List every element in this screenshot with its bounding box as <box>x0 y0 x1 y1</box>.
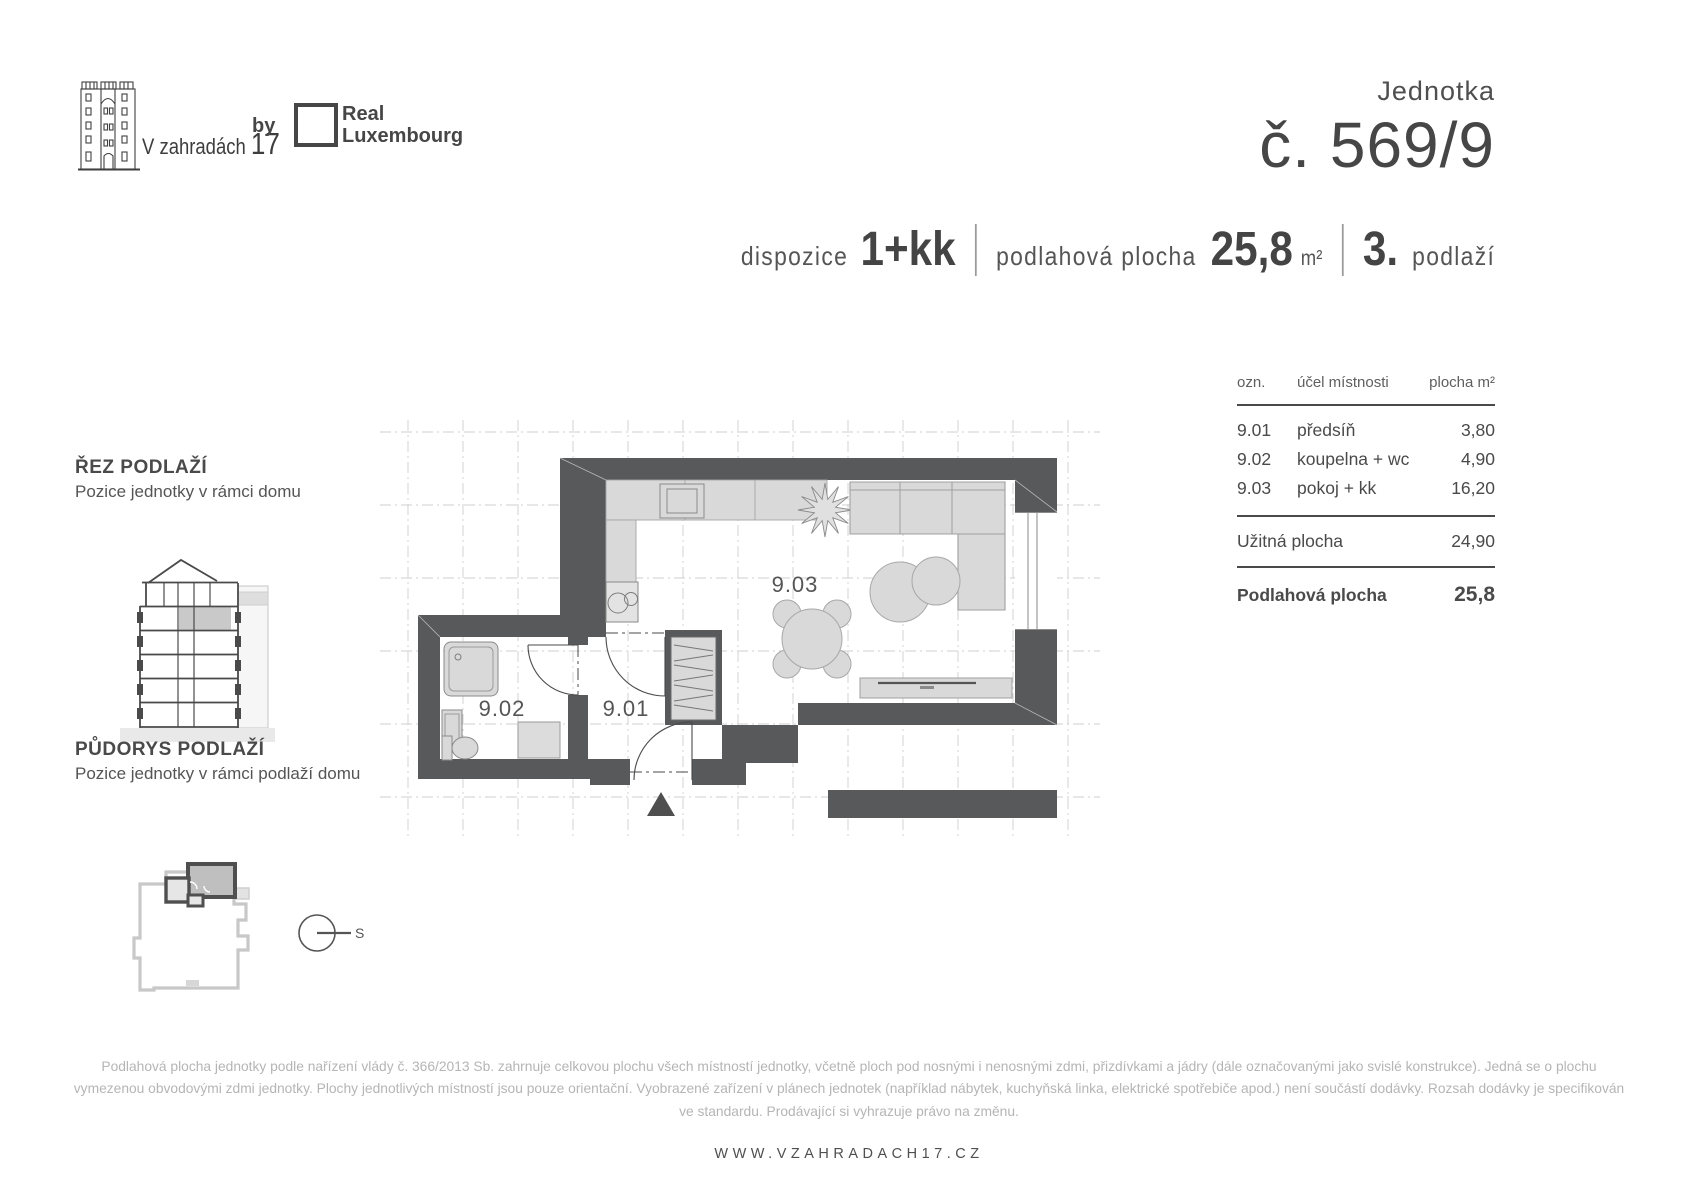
kitchen-sink <box>660 484 704 518</box>
area-label: podlahová plocha <box>996 241 1197 272</box>
floor-label: podlaží <box>1412 241 1495 272</box>
floor-position-title: PŮDORYS PODLAŽÍ <box>75 739 264 761</box>
floor-value: 3. <box>1363 222 1398 277</box>
dispozice-label: dispozice <box>741 241 848 272</box>
total-area-row: Podlahová plocha 25,8 <box>1237 568 1495 607</box>
floor-position-subtitle: Pozice jednotky v rámci podlaží domu <box>75 764 360 784</box>
col-plocha: plocha m² <box>1425 374 1495 391</box>
room-label-903: 9.03 <box>772 572 819 597</box>
col-ucel: účel místnosti <box>1297 374 1425 391</box>
spec-row: dispozice 1+kk podlahová plocha 25,8 m² … <box>741 222 1495 277</box>
floor-position-diagram <box>124 838 269 998</box>
real-luxembourg-wordmark: Real Luxembourg <box>342 103 463 147</box>
brochure-page: V zahradách 17 by Real Luxembourg Jednot… <box>0 0 1698 1200</box>
tv-sideboard <box>860 678 1012 698</box>
floor-plan: 9.03 9.02 9.01 <box>380 420 1100 840</box>
compass-icon: S <box>296 910 368 956</box>
shower <box>444 642 498 696</box>
area-value: 25,8 <box>1210 222 1292 277</box>
col-ozn: ozn. <box>1237 374 1297 391</box>
kitchen-counter <box>606 480 827 582</box>
entrance-arrow-icon <box>647 792 675 816</box>
section-cut-title: ŘEZ PODLAŽÍ <box>75 457 207 479</box>
section-cut-subtitle: Pozice jednotky v rámci domu <box>75 482 301 502</box>
real-luxembourg-logo-icon <box>294 103 338 147</box>
by-label: by <box>252 115 275 138</box>
usable-area-row: Užitná plocha 24,90 <box>1237 517 1495 568</box>
highlighted-unit <box>188 864 235 897</box>
building-logo-icon <box>78 80 140 172</box>
room-label-902: 9.02 <box>479 696 526 721</box>
dispozice-value: 1+kk <box>860 222 955 277</box>
area-unit: m² <box>1301 247 1323 271</box>
room-label-901: 9.01 <box>603 696 650 721</box>
building-section-diagram <box>120 550 275 750</box>
unit-label: Jednotka <box>1377 76 1495 107</box>
disclaimer-text: Podlahová plocha jednotky podle nařízení… <box>66 1056 1632 1123</box>
table-row: 9.02 koupelna + wc 4,90 <box>1237 445 1495 474</box>
table-row: 9.03 pokoj + kk 16,20 <box>1237 474 1495 503</box>
spec-divider-2 <box>1342 224 1344 276</box>
logo-wordmark: V zahradách 17 <box>142 126 306 162</box>
cooktop <box>606 582 638 622</box>
window <box>1015 512 1057 630</box>
compass-letter: S <box>355 925 364 941</box>
pouf-small <box>912 557 960 605</box>
wardrobe <box>671 637 716 720</box>
washing-machine <box>518 722 560 758</box>
table-header: ozn. účel místnosti plocha m² <box>1237 374 1495 406</box>
dining-table <box>773 600 851 678</box>
table-row: 9.01 předsíň 3,80 <box>1237 416 1495 445</box>
spec-divider <box>975 224 977 276</box>
toilet <box>442 736 478 760</box>
website-url: WWW.VZAHRADACH17.CZ <box>0 1146 1698 1162</box>
room-table: ozn. účel místnosti plocha m² 9.01 předs… <box>1237 374 1495 607</box>
unit-number: č. 569/9 <box>1259 108 1495 182</box>
